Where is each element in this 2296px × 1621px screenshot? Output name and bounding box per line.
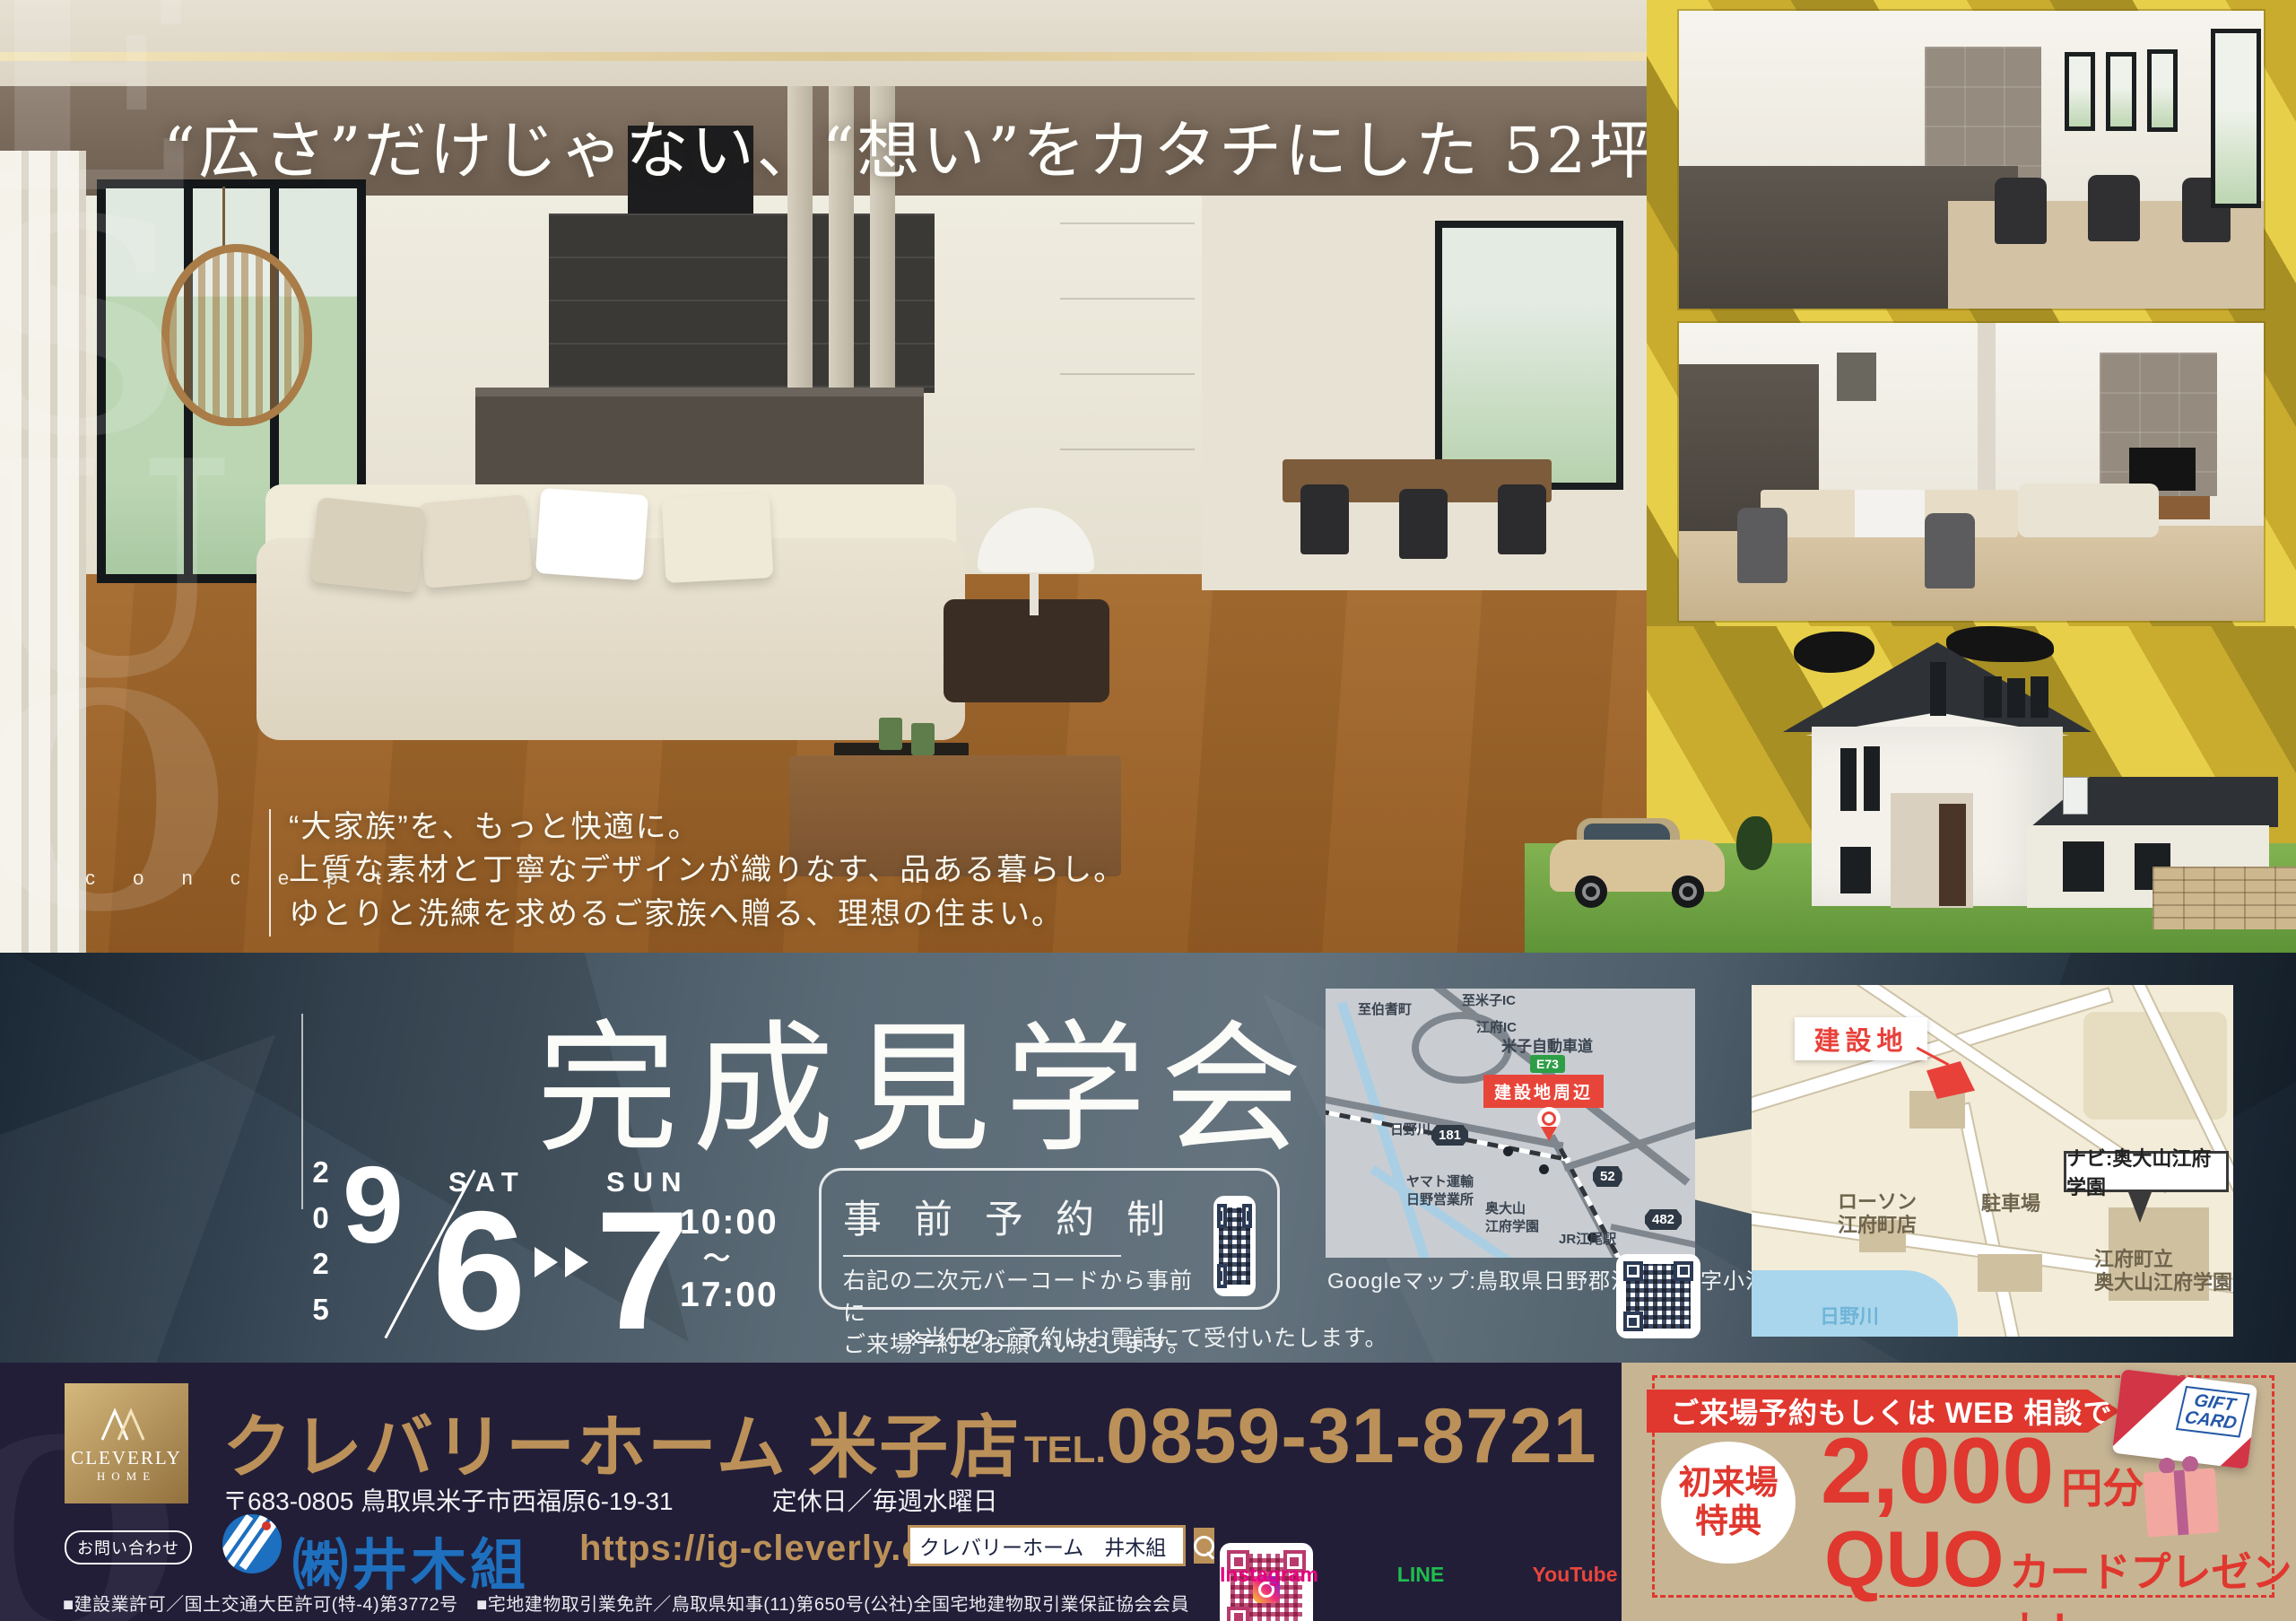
promo-quo-row: QUO カードプレゼント！ <box>1824 1513 2296 1621</box>
map-caption: Googleマップ:鳥取県日野郡江府町大字小江尾62 <box>1327 1263 1816 1294</box>
site-map: 建設地 ナビ:奥大山江府学園 ローソン 江府町店 駐車場 江府町立 奥大山江府学… <box>1752 985 2233 1337</box>
arrow-icon <box>535 1247 588 1277</box>
iki-gumi-logo-icon <box>222 1514 282 1573</box>
main-photo: E S U O “広さ”だけじゃない、“想い”をカタチにした 52坪のお家 c … <box>0 0 1668 953</box>
event-month: 9 <box>343 1150 404 1259</box>
headline: “広さ”だけじゃない、“想い”をカタチにした 52坪のお家 <box>163 100 1598 191</box>
flyer-poster: E S U O “広さ”だけじゃない、“想い”をカタチにした 52坪のお家 c … <box>0 0 2296 1621</box>
sns-label: YouTube <box>1528 1563 1622 1587</box>
time-start: 10:00 <box>680 1202 778 1243</box>
decor <box>1498 484 1546 554</box>
map-label: 日野川 <box>1390 1120 1431 1138</box>
map-label: 日野営業所 <box>1406 1190 1474 1208</box>
decor <box>1855 490 1925 537</box>
promo-panel: ご来場予約もしくは WEB 相談で 初来場 特典 2,000 円分の QUO カ… <box>1622 1363 2296 1621</box>
map-pin-icon <box>1537 1107 1561 1130</box>
stone-wall <box>2152 867 2296 929</box>
brand-name: CLEVERLY <box>71 1447 182 1469</box>
map-label: 江府町立 <box>2094 1247 2173 1272</box>
ac-unit <box>2063 777 2088 815</box>
decor <box>0 52 1668 61</box>
site-area-badge: 建設地周辺 <box>1483 1075 1604 1108</box>
decor <box>2211 29 2261 208</box>
decor <box>2147 49 2178 132</box>
decor <box>879 718 902 750</box>
brand-sub: HOME <box>97 1469 156 1484</box>
badge-line: 特典 <box>1695 1503 1761 1541</box>
decor <box>1995 178 2047 244</box>
reservation-box: 事前予約制 右記の二次元バーコードから事前に ご来場予約をお願いいたします。 <box>819 1168 1280 1310</box>
address-row: 〒683-0805 鳥取県米子市西福原6-19-31 定休日／毎週水曜日 <box>222 1482 998 1518</box>
decor <box>1300 484 1349 554</box>
contact-button[interactable]: お問い合わせ <box>65 1530 192 1564</box>
gift-card-text: GIFT CARD <box>2176 1386 2250 1438</box>
decor <box>1399 489 1448 559</box>
tel-label: TEL. <box>1024 1428 1106 1471</box>
building <box>1978 1254 2042 1292</box>
decor <box>1737 508 1787 583</box>
window-right <box>1435 221 1623 490</box>
legal-text: ■建設業許可／国土交通大臣許可(特-4)第3772号 ■宅地建物取引業免許／鳥取… <box>63 1590 1189 1616</box>
decor <box>1672 876 1704 908</box>
window <box>1930 662 1946 716</box>
concept-copy: “大家族”を、もっと快適に。 上質な素材と丁寧なデザインが織りなす、品ある暮らし… <box>289 806 1126 936</box>
window <box>1840 748 1857 811</box>
map-label: ヤマト運輸 <box>1406 1172 1474 1190</box>
decor <box>1030 572 1039 615</box>
store-name: クレバリーホーム 米子店 <box>222 1392 1021 1492</box>
route-badge-482: 482 <box>1645 1209 1682 1230</box>
decor <box>2018 484 2158 537</box>
route-badge-181: 181 <box>1431 1125 1468 1146</box>
map-label: 奥大山 <box>1485 1198 1526 1217</box>
divider <box>269 809 271 937</box>
promo-quo: QUO <box>1824 1513 2004 1605</box>
map-label: JR江尾駅 <box>1559 1229 1616 1248</box>
map-dot <box>1539 1164 1549 1174</box>
map-dot <box>1503 1146 1513 1156</box>
map-label: 駐車場 <box>1981 1191 2040 1216</box>
window <box>2007 678 2025 718</box>
map-label: 江府町店 <box>1838 1213 1917 1238</box>
reservation-qr-code[interactable] <box>1213 1196 1256 1296</box>
cushion <box>309 497 425 593</box>
sns-label: Instagram <box>1220 1563 1313 1587</box>
map-label: 江府学園 <box>1485 1216 1539 1235</box>
decor <box>222 187 225 249</box>
window <box>1864 746 1880 811</box>
promo-amount: 2,000 <box>1821 1418 2054 1525</box>
concept-line: ゆとりと洗練を求めるご家族へ贈る、理想の住まい。 <box>289 893 1126 936</box>
reservation-title: 事前予約制 <box>843 1189 1197 1244</box>
decor <box>1575 876 1607 908</box>
decor <box>2065 52 2095 131</box>
cushion <box>418 494 533 588</box>
search-input[interactable] <box>910 1528 1194 1564</box>
decor <box>2106 52 2136 131</box>
window <box>1984 676 2002 718</box>
badge-line: 初来場 <box>1679 1464 1779 1503</box>
decor <box>1925 513 1975 588</box>
photo-exterior <box>1525 626 2296 953</box>
address: 〒683-0805 鳥取県米子市西福原6-19-31 <box>222 1482 674 1518</box>
gift-box-illustration <box>2144 1468 2220 1537</box>
time-end: 17:00 <box>680 1275 778 1316</box>
search-button[interactable] <box>1194 1528 1214 1564</box>
decor <box>911 723 935 755</box>
route-badge-52: 52 <box>1593 1166 1622 1187</box>
event-title: 完成見学会 <box>536 974 1317 1180</box>
decor <box>262 1521 271 1530</box>
road <box>1958 1104 2022 1337</box>
map-label: 至米子IC <box>1462 990 1516 1009</box>
concept-line: “大家族”を、もっと快適に。 <box>289 806 1126 849</box>
fridge <box>1060 222 1195 523</box>
time-wave: 〜 <box>703 1243 778 1275</box>
window <box>1840 847 1871 893</box>
closed-days: 定休日／毎週水曜日 <box>772 1482 998 1518</box>
first-visit-badge: 初来場 特典 <box>1661 1442 1796 1564</box>
map-label: 奥大山江府学園 <box>2094 1270 2232 1295</box>
map-qr-code[interactable] <box>1616 1254 1700 1338</box>
company-name: ㈱井木組 <box>292 1520 529 1600</box>
map-label: 至伯耆町 <box>1358 999 1412 1018</box>
cleverly-home-logo: CLEVERLY HOME <box>65 1383 188 1503</box>
reservation-text: 事前予約制 右記の二次元バーコードから事前に ご来場予約をお願いいたします。 <box>843 1189 1197 1289</box>
event-day1: 6 <box>432 1193 526 1348</box>
phone-number: TEL. 0859-31-8721 <box>1024 1392 1597 1481</box>
decor <box>2088 175 2140 241</box>
window <box>2063 841 2104 892</box>
route-badge-e73: E73 <box>1530 1055 1565 1073</box>
event-times: 10:00 〜 17:00 <box>680 1202 778 1316</box>
house-door <box>1939 804 1966 906</box>
tel-value: 0859-31-8721 <box>1106 1392 1597 1481</box>
map-label: ローソン <box>1838 1190 1917 1215</box>
ghost-letter: O <box>0 655 230 951</box>
side-table <box>944 599 1109 702</box>
reservation-note: ※当日のご予約はお電話にて受付いたします。 <box>904 1320 1387 1353</box>
photo-kitchen <box>1679 11 2264 309</box>
navi-label: ナビ:奥大山江府学園 <box>2064 1151 2229 1192</box>
cushion <box>662 492 774 583</box>
search-box <box>908 1525 1186 1566</box>
house-icon <box>100 1404 152 1442</box>
window <box>2031 676 2048 718</box>
promo-quo-suffix: カードプレゼント！ <box>2009 1539 2296 1621</box>
cushion <box>535 488 648 580</box>
area-map: 至伯耆町 至米子IC 江府IC 米子自動車道 E73 建設地周辺 日野川 181… <box>1326 989 1695 1258</box>
event-year: 2025 <box>303 1155 337 1338</box>
construction-site-label: 建設地 <box>1795 1017 1927 1060</box>
photo-dining <box>1679 323 2264 621</box>
divider <box>843 1255 1121 1257</box>
sns-label: LINE <box>1374 1563 1467 1587</box>
map-label-river: 日野川 <box>1820 1304 1879 1329</box>
map-label: 米子自動車道 <box>1501 1033 1593 1056</box>
decor <box>1837 353 1876 401</box>
event-day2: 7 <box>596 1193 690 1348</box>
concept-line: 上質な素材と丁寧なデザインが織りなす、品ある暮らし。 <box>289 849 1126 892</box>
search-icon <box>1194 1536 1214 1556</box>
